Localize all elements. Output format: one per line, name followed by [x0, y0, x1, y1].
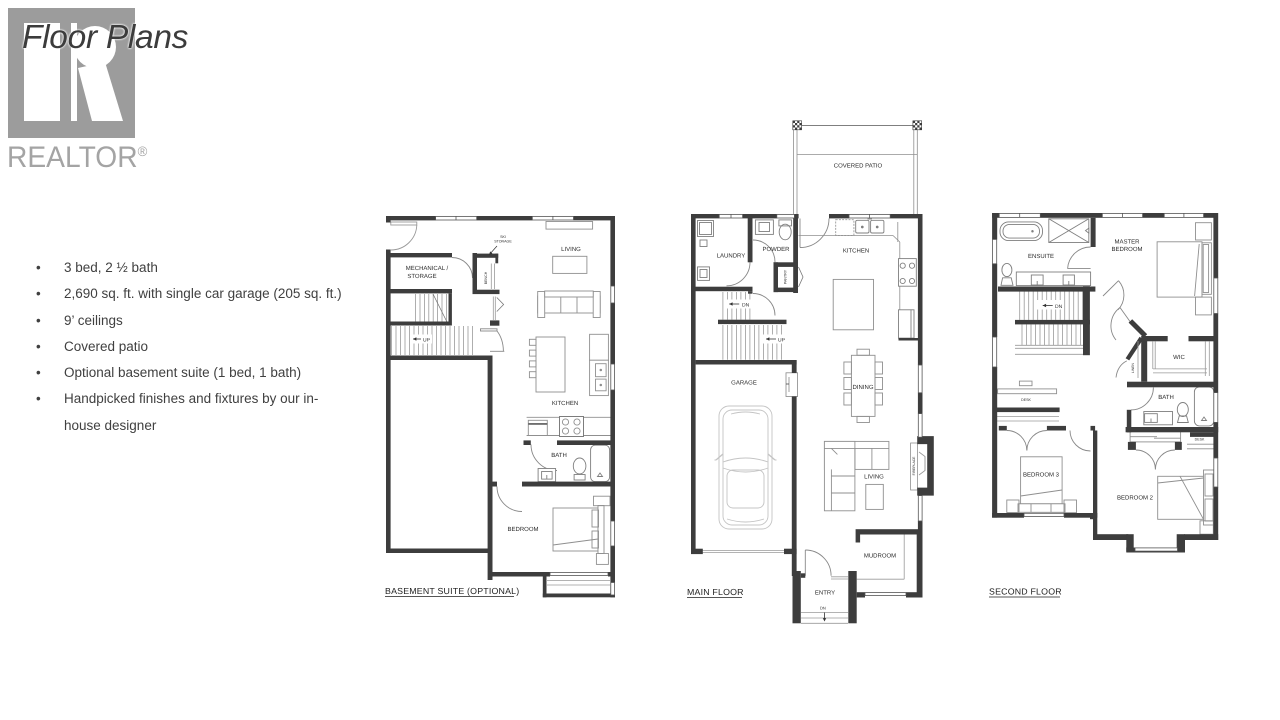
svg-text:POWDER: POWDER — [763, 246, 791, 253]
svg-text:SECOND FLOOR: SECOND FLOOR — [989, 587, 1062, 597]
svg-text:BEDROOM 3: BEDROOM 3 — [1023, 472, 1060, 479]
svg-text:BENCH: BENCH — [484, 271, 488, 284]
svg-text:STORAGE: STORAGE — [407, 273, 436, 280]
svg-text:WIC: WIC — [1173, 354, 1185, 361]
svg-text:ENTRY: ENTRY — [815, 590, 835, 597]
svg-text:DN: DN — [820, 606, 826, 611]
svg-text:FIREPLACE: FIREPLACE — [912, 456, 916, 476]
svg-text:KITCHEN: KITCHEN — [843, 248, 869, 255]
svg-text:MAIN FLOOR: MAIN FLOOR — [687, 587, 744, 597]
svg-text:SKI: SKI — [500, 235, 506, 239]
svg-text:BATH: BATH — [1158, 394, 1174, 401]
svg-text:PANTRY: PANTRY — [784, 269, 788, 284]
svg-text:MUDROOM: MUDROOM — [864, 553, 896, 560]
svg-text:DESK: DESK — [1195, 437, 1205, 441]
svg-text:BATH: BATH — [551, 452, 567, 459]
svg-text:ENSUITE: ENSUITE — [1028, 253, 1054, 260]
svg-text:GARAGE: GARAGE — [731, 380, 757, 387]
svg-text:COVERED PATIO: COVERED PATIO — [834, 163, 883, 170]
svg-text:DESK: DESK — [1021, 398, 1031, 402]
svg-text:STORAGE: STORAGE — [494, 240, 512, 244]
svg-text:LINEN: LINEN — [1131, 362, 1135, 373]
svg-text:BEDROOM: BEDROOM — [507, 526, 538, 533]
svg-text:DINING: DINING — [853, 384, 874, 391]
svg-text:DN: DN — [1055, 304, 1063, 310]
svg-text:BEDROOM 2: BEDROOM 2 — [1117, 495, 1154, 502]
svg-text:MASTER: MASTER — [1114, 239, 1140, 246]
svg-text:UP: UP — [423, 338, 431, 344]
svg-text:MECHANICAL /: MECHANICAL / — [406, 265, 449, 272]
svg-text:DN: DN — [742, 303, 750, 309]
svg-text:KITCHEN: KITCHEN — [552, 400, 578, 407]
svg-text:BASEMENT SUITE (OPTIONAL): BASEMENT SUITE (OPTIONAL) — [385, 586, 519, 596]
svg-text:BEDROOM: BEDROOM — [1111, 246, 1142, 253]
svg-text:UP: UP — [778, 338, 786, 344]
svg-text:LAUNDRY: LAUNDRY — [717, 253, 746, 260]
svg-text:LIVING: LIVING — [561, 246, 581, 253]
svg-text:LIVING: LIVING — [864, 474, 884, 481]
